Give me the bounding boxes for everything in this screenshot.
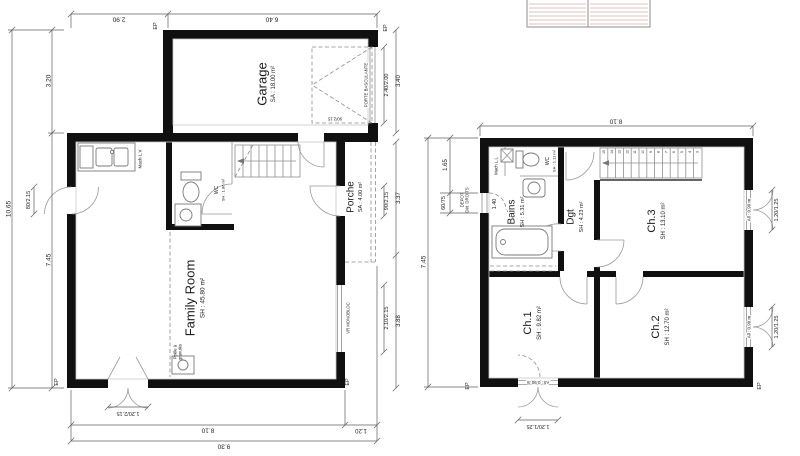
ep-marker: EP bbox=[153, 22, 159, 30]
dim-bottom-overall: 9.30 bbox=[217, 443, 230, 450]
porte-basculante-label: PORTE BASCULANTE bbox=[364, 63, 369, 108]
ground-floor-stairs bbox=[235, 145, 300, 177]
wc-name: WC bbox=[545, 156, 551, 165]
family-room-name: Family Room bbox=[183, 260, 198, 337]
kitchen-fixtures bbox=[78, 143, 135, 171]
dim-left-overall: 10.65 bbox=[6, 200, 13, 217]
title-block-fragment bbox=[527, 0, 650, 27]
garage-name: Garage bbox=[255, 62, 270, 105]
room-label-garage: Garage SA : 18.00 m² bbox=[255, 62, 278, 105]
floor-plan-drawing: Garage SA : 18.00 m² Porche SA : 4.00 m²… bbox=[0, 0, 800, 456]
dim-window: 1.20/1.25 bbox=[527, 423, 550, 429]
dim-left-lower: 7.45 bbox=[46, 253, 53, 266]
depot-label: DEPOT Dét. DROITS bbox=[460, 187, 470, 212]
dim-bottom-porch: 1.20 bbox=[355, 427, 367, 433]
wc-area: SH : 1.11 m² bbox=[552, 149, 557, 172]
dim-left-overall: 7.45 bbox=[421, 255, 428, 268]
room-label-family-room: Family Room SH : 45.80 m² bbox=[183, 260, 207, 337]
svg-text:4: 4 bbox=[688, 151, 692, 153]
ch1-area: SH : 9.82 m² bbox=[537, 306, 543, 340]
window-allege-label: All : 0.90 m bbox=[526, 380, 549, 385]
dim-left-door: 80/2.15 bbox=[26, 191, 32, 209]
house-inner-outline bbox=[76, 142, 336, 379]
porche-area: SA : 4.00 m² bbox=[358, 182, 364, 212]
floor-plan-sheet: Garage SA : 18.00 m² Porche SA : 4.00 m²… bbox=[0, 0, 800, 456]
dim-lower-right: 3.88 bbox=[396, 315, 402, 327]
garage-inner-door-label: 90/2.15 bbox=[327, 117, 342, 122]
bay-window bbox=[338, 285, 342, 352]
dim-bottom-main: 8.10 bbox=[201, 427, 214, 434]
bains-name: Bains bbox=[507, 199, 518, 224]
dim-garage-height: 3.40 bbox=[396, 75, 402, 87]
svg-text:3: 3 bbox=[696, 151, 700, 153]
poele-line2: granulés bbox=[178, 344, 183, 360]
placard-dashed bbox=[490, 266, 556, 271]
wc-fixtures bbox=[175, 172, 201, 226]
ep-marker: EP bbox=[757, 382, 763, 390]
toilet-tank bbox=[181, 172, 201, 180]
ch3-name: Ch.3 bbox=[646, 209, 658, 232]
dim-inner: 1.40 bbox=[492, 199, 498, 210]
ep-marker: EP bbox=[345, 378, 351, 386]
stair-arrow bbox=[237, 158, 244, 164]
wc-area: SH : 1.86 m² bbox=[221, 178, 226, 201]
garage-area: SA : 18.00 m² bbox=[271, 66, 277, 102]
window-allege-label: All : 0.90 m bbox=[747, 315, 752, 338]
ep-marker: EP bbox=[54, 378, 60, 386]
ch1-name: Ch.1 bbox=[522, 311, 534, 334]
ch3-area: SH : 13.10 m² bbox=[661, 202, 667, 239]
mach-ll-label: Mach L.L bbox=[494, 157, 499, 175]
room-label-wc-ff: WC SH : 1.11 m² bbox=[545, 149, 557, 172]
room-label-ch2: Ch.2 SH : 12.70 m² bbox=[650, 308, 671, 345]
ground-floor-plan: Garage SA : 18.00 m² Porche SA : 4.00 m²… bbox=[6, 11, 403, 450]
svg-text:6: 6 bbox=[672, 151, 676, 153]
toilet-bowl bbox=[523, 153, 539, 166]
pellet-stove-label: Poêle à granulés bbox=[173, 344, 183, 360]
vr-monobloc-label: VR MONOBLOC bbox=[346, 302, 351, 333]
family-room-area: SH : 45.80 m² bbox=[200, 277, 207, 318]
stair-arrow bbox=[602, 160, 609, 166]
sink-right bbox=[114, 148, 128, 166]
ep-marker: EP bbox=[383, 24, 389, 32]
window-allege-label: All : 0.90 m bbox=[747, 198, 752, 221]
stair-step-numbers: 15 14 13 12 11 10 9 8 7 6 5 4 3 bbox=[602, 150, 700, 154]
ch2-area: SH : 12.70 m² bbox=[665, 308, 671, 345]
room-label-porche: Porche SA : 4.00 m² bbox=[346, 181, 365, 213]
svg-text:12: 12 bbox=[625, 150, 629, 154]
svg-text:10: 10 bbox=[641, 150, 645, 154]
svg-text:11: 11 bbox=[633, 150, 637, 154]
toilet-bowl bbox=[183, 182, 199, 202]
room-label-ch1: Ch.1 SH : 9.82 m² bbox=[522, 306, 543, 340]
dim-top-right: 6.40 bbox=[265, 16, 278, 23]
room-label-bains: Bains SH : 5.31 m² bbox=[507, 196, 527, 227]
bains-area: SH : 5.31 m² bbox=[520, 196, 526, 227]
dim-left-upper: 3.20 bbox=[46, 74, 53, 87]
mach-lv-label: Mach L.V bbox=[138, 149, 143, 168]
dim-top-left: 2.90 bbox=[112, 16, 125, 23]
dim-porch-height: 3.37 bbox=[396, 192, 402, 204]
svg-text:8: 8 bbox=[657, 151, 661, 153]
dim-top: 8.10 bbox=[609, 118, 622, 125]
dim-left-upper: 1.65 bbox=[443, 159, 449, 171]
room-label-wc-gf: WC SH : 1.86 m² bbox=[214, 178, 226, 201]
ch2-name: Ch.2 bbox=[650, 315, 662, 338]
dgt-name: Dgt bbox=[566, 209, 577, 225]
dim-window: 1.20/1.25 bbox=[774, 316, 780, 339]
room-label-ch3: Ch.3 SH : 13.10 m² bbox=[646, 202, 667, 239]
room-label-dgt: Dgt SH : 4.23 m² bbox=[566, 201, 586, 232]
dgt-area: SH : 4.23 m² bbox=[579, 201, 585, 232]
svg-text:13: 13 bbox=[618, 150, 622, 154]
dim-left-window: 60/75 bbox=[441, 196, 447, 210]
first-floor-plan: 15 14 13 12 11 10 9 8 7 6 5 4 3 bbox=[421, 118, 781, 430]
svg-text:9: 9 bbox=[649, 151, 653, 153]
toilet-tank bbox=[516, 151, 523, 168]
faucet bbox=[110, 150, 113, 153]
svg-text:14: 14 bbox=[610, 150, 614, 154]
ground-floor-walls bbox=[67, 30, 378, 388]
svg-text:5: 5 bbox=[680, 151, 684, 153]
dim-bay-window: 2.10/2.15 bbox=[384, 307, 390, 330]
wc-name: WC bbox=[214, 185, 220, 194]
dim-garage-door: 2.40/2.00 bbox=[384, 74, 390, 97]
svg-text:7: 7 bbox=[664, 151, 668, 153]
ep-marker: EP bbox=[465, 382, 471, 390]
sink-left bbox=[96, 148, 112, 166]
depot-line2: Dét. DROITS bbox=[465, 187, 470, 212]
svg-text:15: 15 bbox=[602, 150, 606, 154]
dim-window: 1.20/1.25 bbox=[774, 199, 780, 222]
dim-entry-door: 90/2.15 bbox=[384, 192, 390, 210]
first-floor-walls bbox=[480, 138, 753, 387]
porche-name: Porche bbox=[346, 181, 357, 213]
dim-bottom-door: 1.20/2.15 bbox=[117, 410, 140, 416]
first-floor-stairs: 15 14 13 12 11 10 9 8 7 6 5 4 3 bbox=[600, 148, 702, 180]
